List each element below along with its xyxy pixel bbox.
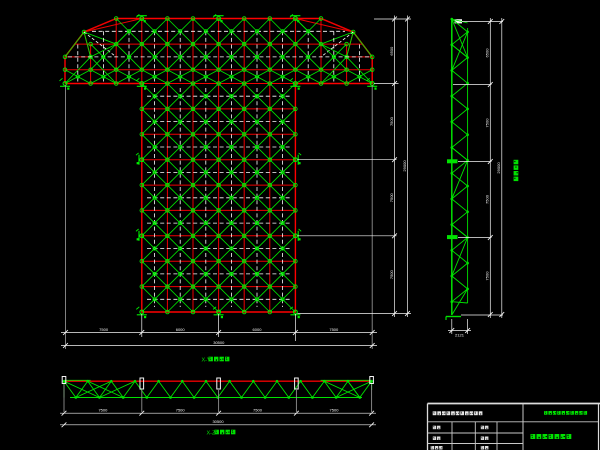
svg-text:7500: 7500 — [98, 408, 108, 413]
svg-text:29000: 29000 — [496, 162, 501, 174]
svg-text:6500: 6500 — [485, 48, 490, 58]
svg-text:6000: 6000 — [176, 327, 186, 332]
svg-text:7500: 7500 — [253, 408, 263, 413]
svg-text:7500: 7500 — [389, 116, 394, 126]
svg-text:30500: 30500 — [213, 340, 225, 345]
svg-text:7500: 7500 — [176, 408, 186, 413]
svg-text:29000: 29000 — [402, 160, 407, 172]
svg-text:7500: 7500 — [330, 408, 340, 413]
svg-text:6500: 6500 — [389, 46, 394, 56]
svg-text:7500: 7500 — [329, 327, 339, 332]
svg-text:7500: 7500 — [485, 118, 490, 128]
svg-text:7500: 7500 — [389, 193, 394, 203]
svg-text:2121: 2121 — [455, 333, 465, 338]
svg-text:7500: 7500 — [485, 194, 490, 204]
svg-text:7500: 7500 — [99, 327, 109, 332]
svg-text:30500: 30500 — [212, 419, 224, 424]
svg-text:6000: 6000 — [253, 327, 263, 332]
svg-text:7500: 7500 — [389, 269, 394, 279]
svg-text:7500: 7500 — [485, 271, 490, 281]
